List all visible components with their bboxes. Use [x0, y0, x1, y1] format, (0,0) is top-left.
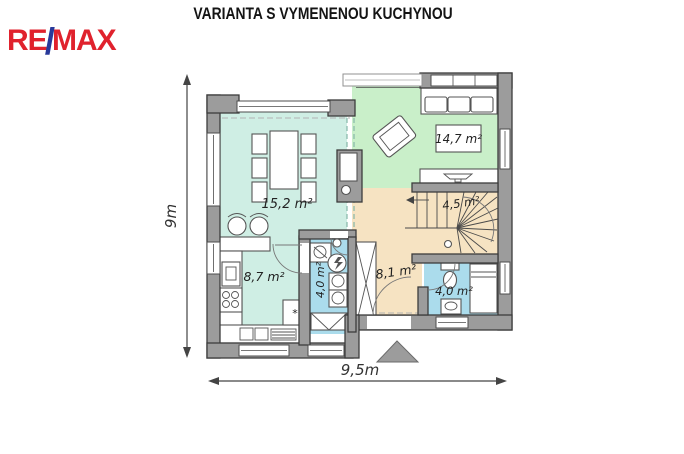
window-living-top: [431, 75, 497, 86]
label-dining: 15,2 m²: [262, 197, 313, 212]
floorplan-drawing: *: [0, 0, 684, 454]
dimension-height-label: 9m: [162, 204, 180, 228]
arrow-right-icon: [496, 377, 507, 385]
entrance-triangle-icon: [377, 341, 418, 362]
bar-stool: [228, 217, 246, 235]
dimension-width-label: 9,5m: [341, 361, 379, 379]
floorplan-page: VARIANTA S VYMENENOU KUCHYNOU RE/MAX: [0, 0, 684, 454]
chair: [252, 158, 267, 178]
arrow-up-icon: [183, 74, 191, 85]
wall-top-left-corner: [207, 95, 239, 113]
wall-utility-right: [348, 237, 356, 332]
stove: [219, 288, 242, 312]
label-utility: 4,0 m²: [314, 261, 327, 298]
arrow-left-icon: [208, 377, 219, 385]
flue-circle: [333, 239, 341, 247]
fridge-snowflake-icon: *: [292, 307, 298, 320]
kitchen-bar-counter: [218, 237, 270, 251]
wall-top-pier: [328, 100, 355, 116]
chair: [252, 134, 267, 154]
wall-stairs-bottom: [412, 254, 498, 263]
chair: [301, 134, 316, 154]
newel-post: [445, 241, 452, 248]
sofa-cushion: [425, 97, 447, 112]
label-kitchen: 8,7 m²: [243, 269, 284, 284]
oven: [222, 262, 240, 286]
chair: [301, 158, 316, 178]
entrance-opening: [367, 316, 411, 329]
fireplace: [340, 153, 357, 181]
wall-stairs-top: [412, 183, 498, 192]
sofa-cushion: [448, 97, 470, 112]
label-living: 14,7 m²: [435, 132, 482, 146]
utility-shelf: [311, 313, 347, 330]
dimension-horizontal: 9,5m: [208, 361, 507, 385]
shower-closet: [470, 264, 497, 313]
dimension-vertical: 9m: [162, 74, 191, 358]
bar-stool: [250, 217, 268, 235]
kitchen-door-opening: [300, 243, 309, 273]
arrow-down-icon: [183, 347, 191, 358]
sofa-cushion: [471, 97, 493, 112]
label-bathroom: 4,0 m²: [435, 284, 473, 298]
utility-door-opening: [330, 231, 348, 238]
dining-table: [270, 131, 298, 189]
wall-bathroom-left: [418, 287, 428, 315]
flue-circle: [342, 186, 351, 195]
washbasin-cabinet: [441, 299, 461, 314]
toilet-tank: [441, 263, 459, 270]
